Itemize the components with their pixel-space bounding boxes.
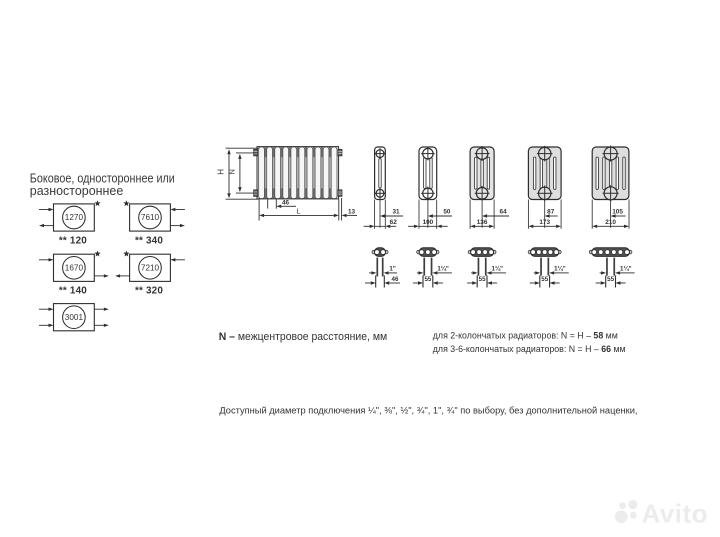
svg-text:136: 136 — [477, 219, 488, 226]
svg-text:** 120: ** 120 — [59, 235, 87, 246]
svg-text:13: 13 — [348, 208, 356, 215]
svg-text:1¼": 1¼" — [554, 265, 566, 272]
svg-text:87: 87 — [547, 209, 555, 216]
svg-text:7210: 7210 — [141, 263, 160, 272]
svg-text:1¼": 1¼" — [492, 265, 504, 272]
svg-text:разностороннее: разностороннее — [30, 183, 124, 198]
svg-text:1": 1" — [389, 265, 395, 272]
svg-text:55: 55 — [607, 276, 614, 283]
svg-text:1¼": 1¼" — [620, 265, 632, 272]
svg-text:55: 55 — [424, 276, 431, 283]
svg-text:Доступный диаметр подключения: Доступный диаметр подключения ¼", ⅜", ½"… — [219, 405, 637, 415]
svg-text:55: 55 — [479, 276, 486, 283]
svg-text:62: 62 — [390, 219, 398, 226]
svg-text:105: 105 — [612, 209, 623, 216]
svg-text:46: 46 — [282, 200, 290, 207]
svg-text:H: H — [217, 169, 226, 175]
svg-text:** 320: ** 320 — [135, 286, 163, 297]
svg-text:L: L — [297, 206, 301, 215]
svg-text:1670: 1670 — [65, 263, 84, 272]
svg-text:7610: 7610 — [141, 213, 160, 222]
svg-text:** 140: ** 140 — [59, 286, 87, 297]
svg-text:N – межцентровое расстояние, м: N – межцентровое расстояние, мм — [219, 331, 387, 343]
svg-text:46: 46 — [392, 276, 399, 283]
svg-text:для 3-6-колончатых радиаторов:: для 3-6-колончатых радиаторов: N = H – 6… — [433, 344, 626, 354]
svg-text:1¼": 1¼" — [437, 265, 449, 272]
svg-text:Avito: Avito — [642, 499, 709, 529]
svg-text:173: 173 — [539, 219, 550, 226]
svg-text:55: 55 — [541, 276, 548, 283]
svg-text:31: 31 — [392, 209, 400, 216]
svg-text:для 2-колончатых радиаторов: N: для 2-колончатых радиаторов: N = H – 58 … — [433, 330, 618, 340]
svg-text:100: 100 — [423, 219, 434, 226]
svg-text:64: 64 — [500, 209, 508, 216]
svg-text:** 340: ** 340 — [135, 235, 163, 246]
svg-text:50: 50 — [443, 209, 451, 216]
svg-text:210: 210 — [605, 219, 616, 226]
svg-text:3001: 3001 — [65, 313, 84, 322]
svg-text:N: N — [227, 169, 236, 174]
svg-text:1270: 1270 — [65, 213, 84, 222]
